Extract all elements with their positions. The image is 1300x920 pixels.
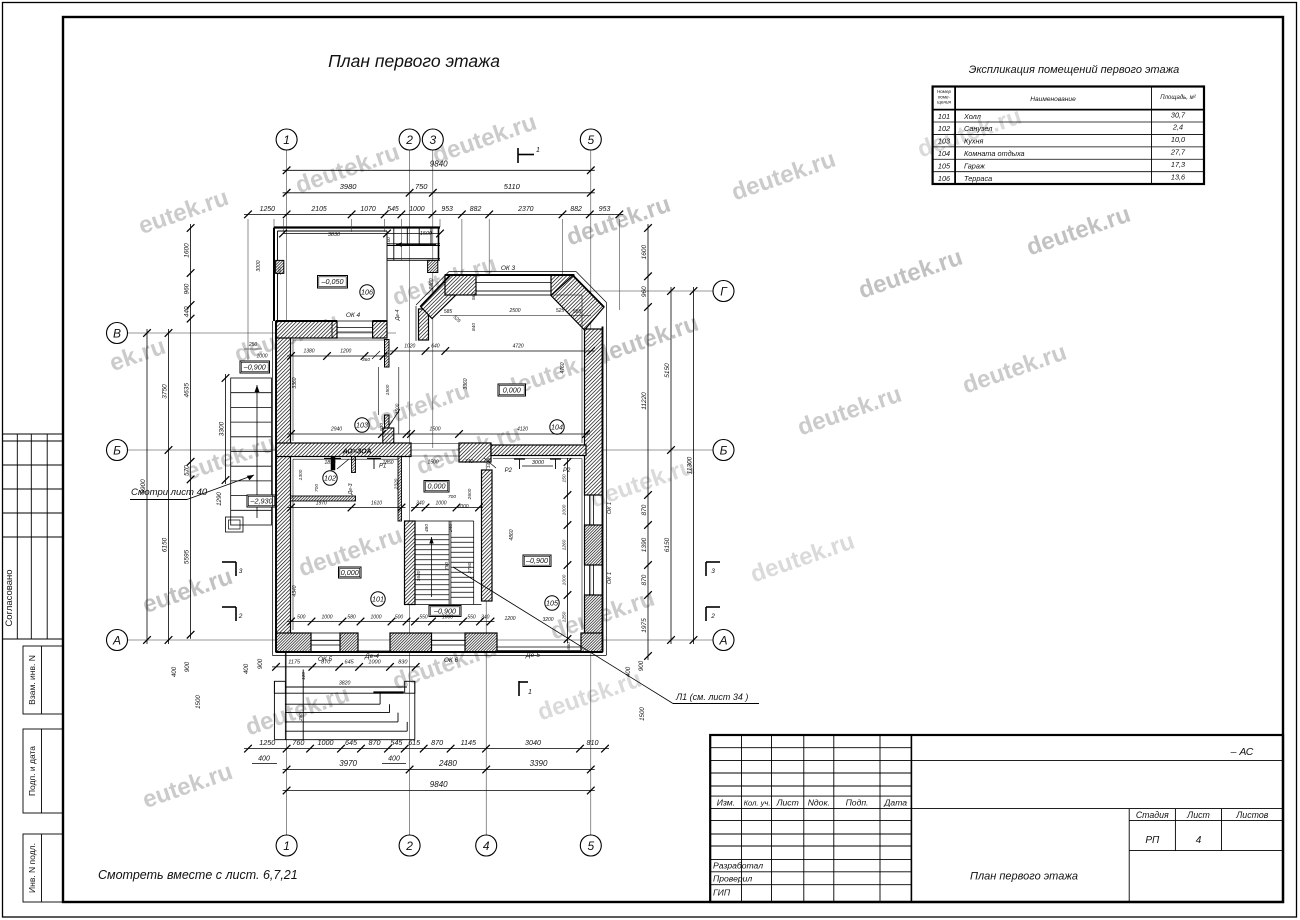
svg-text:1000: 1000 bbox=[435, 501, 446, 507]
svg-text:Лист: Лист bbox=[1186, 810, 1210, 820]
svg-text:3750: 3750 bbox=[162, 384, 169, 399]
svg-text:103: 103 bbox=[938, 137, 950, 146]
svg-text:поме-: поме- bbox=[938, 94, 951, 99]
svg-text:480: 480 bbox=[424, 524, 430, 532]
svg-text:700: 700 bbox=[314, 484, 320, 492]
svg-text:3640: 3640 bbox=[416, 570, 422, 581]
svg-text:4120: 4120 bbox=[517, 427, 528, 433]
svg-text:400: 400 bbox=[258, 756, 270, 763]
svg-text:882: 882 bbox=[570, 206, 582, 213]
svg-text:Л1 (см. лист 34 ): Л1 (см. лист 34 ) bbox=[675, 692, 748, 702]
svg-text:1200: 1200 bbox=[340, 349, 351, 355]
svg-text:400: 400 bbox=[243, 663, 250, 674]
svg-text:500: 500 bbox=[395, 615, 404, 621]
svg-text:1000: 1000 bbox=[457, 504, 468, 510]
svg-text:1380: 1380 bbox=[303, 349, 314, 355]
svg-text:830: 830 bbox=[398, 660, 408, 666]
svg-text:4760: 4760 bbox=[560, 362, 566, 373]
svg-text:0,000: 0,000 bbox=[341, 568, 359, 577]
svg-text:3820: 3820 bbox=[339, 681, 351, 687]
svg-text:Санузел: Санузел bbox=[964, 124, 992, 133]
svg-text:1260: 1260 bbox=[562, 539, 568, 550]
svg-text:104: 104 bbox=[938, 149, 950, 158]
svg-text:1600: 1600 bbox=[641, 245, 648, 260]
svg-text:3390: 3390 bbox=[530, 759, 548, 768]
svg-text:700: 700 bbox=[448, 494, 456, 500]
svg-text:2: 2 bbox=[238, 613, 243, 620]
svg-text:2320: 2320 bbox=[394, 478, 400, 490]
svg-text:Подп. и дата: Подп. и дата bbox=[27, 746, 37, 796]
svg-text:640: 640 bbox=[431, 344, 440, 350]
svg-text:ГИП: ГИП bbox=[713, 887, 731, 897]
svg-text:400: 400 bbox=[388, 756, 400, 763]
svg-text:–0,900: –0,900 bbox=[243, 362, 266, 371]
svg-text:0,000: 0,000 bbox=[503, 385, 521, 394]
svg-text:Взам. инв. N: Взам. инв. N bbox=[27, 655, 37, 705]
svg-text:1: 1 bbox=[283, 839, 290, 853]
svg-text:13,6: 13,6 bbox=[1171, 172, 1186, 181]
svg-text:1: 1 bbox=[283, 133, 290, 147]
svg-text:1500: 1500 bbox=[639, 707, 646, 721]
svg-text:2480: 2480 bbox=[438, 759, 457, 768]
svg-text:Холл: Холл bbox=[963, 112, 981, 121]
svg-text:3980: 3980 bbox=[340, 182, 358, 191]
svg-text:102: 102 bbox=[324, 474, 336, 483]
svg-text:Подп.: Подп. bbox=[846, 798, 869, 808]
svg-text:27,7: 27,7 bbox=[1170, 148, 1186, 157]
svg-text:1460: 1460 bbox=[429, 278, 435, 289]
svg-text:1600: 1600 bbox=[184, 243, 191, 258]
svg-text:4500: 4500 bbox=[395, 403, 401, 414]
svg-text:810: 810 bbox=[587, 738, 599, 747]
svg-text:1000: 1000 bbox=[442, 615, 453, 621]
svg-text:900: 900 bbox=[184, 661, 191, 672]
svg-text:660: 660 bbox=[566, 642, 571, 650]
svg-text:0,000: 0,000 bbox=[428, 482, 446, 491]
svg-text:104: 104 bbox=[551, 423, 563, 432]
svg-text:525: 525 bbox=[556, 308, 565, 314]
svg-text:Проверил: Проверил bbox=[713, 874, 752, 884]
svg-text:4635: 4635 bbox=[184, 383, 191, 398]
svg-text:30,7: 30,7 bbox=[1171, 110, 1186, 119]
svg-text:3830: 3830 bbox=[328, 232, 341, 238]
svg-text:1500: 1500 bbox=[385, 384, 391, 395]
svg-text:1000: 1000 bbox=[256, 354, 267, 360]
svg-text:1000: 1000 bbox=[562, 574, 568, 585]
svg-text:105: 105 bbox=[938, 161, 951, 170]
svg-text:105: 105 bbox=[546, 599, 559, 608]
svg-text:3: 3 bbox=[239, 568, 243, 575]
svg-text:150: 150 bbox=[562, 474, 568, 482]
svg-text:Изм.: Изм. bbox=[717, 798, 735, 808]
svg-text:ОК 4: ОК 4 bbox=[346, 312, 361, 319]
svg-text:953: 953 bbox=[599, 206, 611, 213]
svg-text:1500: 1500 bbox=[427, 460, 438, 466]
svg-text:585: 585 bbox=[573, 309, 582, 315]
svg-text:4860: 4860 bbox=[509, 529, 515, 540]
svg-text:5110: 5110 bbox=[504, 182, 521, 191]
svg-text:4720: 4720 bbox=[513, 344, 524, 350]
svg-text:740: 740 bbox=[465, 459, 474, 465]
svg-text:План первого этажа: План первого этажа bbox=[970, 871, 1078, 883]
svg-text:1850: 1850 bbox=[324, 460, 335, 466]
svg-text:Комната отдыха: Комната отдыха bbox=[964, 149, 1025, 158]
svg-text:щения: щения bbox=[937, 100, 952, 105]
svg-text:900: 900 bbox=[638, 660, 645, 671]
svg-text:870: 870 bbox=[431, 738, 443, 747]
svg-text:1300: 1300 bbox=[298, 469, 304, 480]
svg-text:645: 645 bbox=[345, 660, 355, 666]
svg-text:11300: 11300 bbox=[687, 456, 694, 474]
svg-text:Площадь, м²: Площадь, м² bbox=[1160, 95, 1196, 101]
svg-text:1390: 1390 bbox=[641, 537, 648, 552]
svg-text:2500: 2500 bbox=[508, 308, 520, 314]
svg-text:1200: 1200 bbox=[504, 616, 515, 622]
svg-text:750: 750 bbox=[415, 182, 428, 191]
svg-text:4: 4 bbox=[1196, 835, 1202, 846]
svg-text:– АС: – АС bbox=[1230, 746, 1254, 758]
svg-text:Nдок.: Nдок. bbox=[808, 798, 830, 808]
svg-text:1485: 1485 bbox=[486, 457, 491, 468]
svg-text:900: 900 bbox=[257, 658, 264, 669]
svg-text:А: А bbox=[718, 633, 727, 647]
svg-text:3000: 3000 bbox=[256, 260, 262, 271]
svg-text:106: 106 bbox=[361, 288, 373, 297]
svg-text:2: 2 bbox=[710, 613, 715, 620]
svg-text:1250: 1250 bbox=[259, 738, 275, 747]
svg-text:АО=ЗОА: АО=ЗОА bbox=[342, 449, 372, 456]
svg-text:6150: 6150 bbox=[162, 537, 169, 552]
svg-text:3300: 3300 bbox=[219, 421, 226, 436]
svg-text:P2: P2 bbox=[563, 468, 571, 474]
svg-text:1145: 1145 bbox=[461, 738, 477, 747]
svg-text:Кол. уч.: Кол. уч. bbox=[744, 799, 771, 808]
svg-text:3040: 3040 bbox=[525, 738, 541, 747]
svg-text:1250: 1250 bbox=[562, 611, 568, 622]
svg-text:103: 103 bbox=[356, 421, 368, 430]
svg-text:5: 5 bbox=[587, 839, 594, 853]
svg-text:101: 101 bbox=[372, 595, 384, 604]
svg-text:960: 960 bbox=[184, 283, 191, 294]
svg-text:3970: 3970 bbox=[339, 759, 357, 768]
svg-text:3: 3 bbox=[711, 568, 715, 575]
svg-text:300: 300 bbox=[277, 267, 282, 275]
svg-text:9840: 9840 bbox=[430, 160, 448, 169]
svg-text:Терраса: Терраса bbox=[964, 174, 992, 183]
svg-text:РП: РП bbox=[1145, 835, 1160, 846]
svg-text:400: 400 bbox=[171, 666, 178, 677]
svg-text:1000: 1000 bbox=[321, 615, 332, 621]
svg-text:250: 250 bbox=[248, 342, 258, 348]
svg-text:2,4: 2,4 bbox=[1172, 123, 1183, 132]
svg-text:550: 550 bbox=[467, 615, 476, 621]
svg-text:3360: 3360 bbox=[292, 377, 298, 388]
svg-text:1: 1 bbox=[536, 147, 540, 154]
svg-text:1070: 1070 bbox=[360, 206, 375, 213]
svg-text:1975: 1975 bbox=[641, 618, 648, 633]
svg-text:120: 120 bbox=[301, 672, 306, 680]
svg-text:560: 560 bbox=[471, 292, 477, 300]
svg-text:Разработал: Разработал bbox=[713, 860, 763, 870]
svg-text:3200: 3200 bbox=[542, 617, 553, 623]
svg-text:1500: 1500 bbox=[420, 231, 433, 237]
svg-text:870: 870 bbox=[321, 660, 331, 666]
svg-text:440: 440 bbox=[184, 306, 191, 317]
svg-text:1000: 1000 bbox=[562, 504, 568, 515]
svg-text:102: 102 bbox=[938, 124, 950, 133]
svg-text:2105: 2105 bbox=[310, 206, 326, 213]
svg-text:В: В bbox=[113, 326, 121, 340]
svg-text:106: 106 bbox=[938, 174, 951, 183]
svg-text:250: 250 bbox=[298, 713, 303, 722]
svg-text:–0,050: –0,050 bbox=[321, 277, 344, 286]
svg-text:750: 750 bbox=[444, 562, 450, 570]
svg-text:580: 580 bbox=[347, 615, 356, 621]
svg-text:840: 840 bbox=[471, 323, 477, 331]
svg-text:9840: 9840 bbox=[430, 780, 448, 789]
svg-text:Согласовано: Согласовано bbox=[4, 569, 15, 626]
svg-text:2: 2 bbox=[405, 133, 413, 147]
svg-text:100: 100 bbox=[386, 237, 391, 245]
svg-text:240: 240 bbox=[448, 524, 454, 533]
svg-text:340: 340 bbox=[481, 615, 490, 621]
svg-text:1000: 1000 bbox=[368, 660, 381, 666]
svg-text:5: 5 bbox=[587, 133, 594, 147]
svg-text:P2: P2 bbox=[505, 468, 513, 474]
svg-text:ОК 3: ОК 3 bbox=[501, 265, 516, 272]
svg-text:Листов: Листов bbox=[1235, 810, 1268, 820]
svg-text:4340: 4340 bbox=[292, 585, 298, 596]
svg-text:2370: 2370 bbox=[517, 206, 533, 213]
svg-text:1175: 1175 bbox=[288, 660, 301, 666]
svg-text:Де-4: Де-4 bbox=[395, 309, 401, 321]
svg-text:3360: 3360 bbox=[463, 378, 469, 389]
svg-text:2940: 2940 bbox=[330, 427, 342, 433]
svg-text:6150: 6150 bbox=[664, 537, 671, 552]
svg-text:870: 870 bbox=[641, 574, 648, 585]
svg-text:ОК 6: ОК 6 bbox=[444, 657, 459, 664]
svg-text:500: 500 bbox=[297, 615, 306, 621]
svg-text:Стадия: Стадия bbox=[1136, 810, 1169, 820]
svg-text:360: 360 bbox=[362, 357, 370, 363]
svg-text:1500: 1500 bbox=[429, 427, 440, 433]
svg-text:–0,900: –0,900 bbox=[525, 556, 548, 565]
svg-text:870: 870 bbox=[641, 504, 648, 515]
svg-text:340: 340 bbox=[416, 501, 425, 507]
svg-text:Наименование: Наименование bbox=[1030, 96, 1076, 103]
svg-text:Кухня: Кухня bbox=[964, 137, 984, 146]
svg-text:545: 545 bbox=[387, 206, 399, 213]
svg-text:–2,930: –2,930 bbox=[250, 496, 273, 505]
svg-text:План первого этажа: План первого этажа bbox=[328, 51, 500, 71]
svg-text:550: 550 bbox=[419, 615, 428, 621]
svg-text:1970: 1970 bbox=[316, 501, 327, 507]
svg-text:953: 953 bbox=[441, 206, 453, 213]
svg-text:Б: Б bbox=[113, 443, 121, 457]
svg-text:1: 1 bbox=[528, 689, 532, 696]
svg-text:1000: 1000 bbox=[370, 615, 381, 621]
svg-text:5595: 5595 bbox=[184, 549, 191, 564]
svg-text:3: 3 bbox=[429, 133, 436, 147]
svg-text:1610: 1610 bbox=[371, 501, 382, 507]
svg-text:11220: 11220 bbox=[641, 392, 648, 410]
svg-text:1290: 1290 bbox=[216, 492, 223, 506]
svg-text:1000: 1000 bbox=[409, 206, 424, 213]
svg-text:ОК 1: ОК 1 bbox=[607, 572, 613, 584]
svg-text:Смотреть вместе с лист. 6,7,21: Смотреть вместе с лист. 6,7,21 bbox=[98, 868, 298, 882]
svg-text:5150: 5150 bbox=[664, 363, 671, 378]
svg-text:17,3: 17,3 bbox=[1171, 160, 1185, 169]
svg-text:2600: 2600 bbox=[467, 488, 473, 500]
svg-text:930: 930 bbox=[379, 423, 385, 431]
svg-text:4: 4 bbox=[483, 839, 490, 853]
svg-text:Номер: Номер bbox=[937, 89, 952, 94]
svg-text:585: 585 bbox=[444, 309, 453, 315]
svg-text:10,0: 10,0 bbox=[1171, 135, 1185, 144]
svg-text:А: А bbox=[112, 633, 121, 647]
svg-text:3000: 3000 bbox=[532, 460, 545, 466]
svg-text:1850: 1850 bbox=[382, 460, 393, 466]
svg-text:1500: 1500 bbox=[195, 695, 202, 709]
svg-text:Б: Б bbox=[720, 443, 728, 457]
svg-text:Экспликация помещений первого: Экспликация помещений первого этажа bbox=[969, 64, 1180, 76]
svg-text:2760: 2760 bbox=[467, 562, 473, 574]
svg-text:1020: 1020 bbox=[404, 344, 415, 350]
svg-text:Инв. N подл.: Инв. N подл. bbox=[27, 843, 37, 893]
svg-text:Де-3: Де-3 bbox=[348, 483, 354, 495]
svg-text:Лист: Лист bbox=[776, 798, 799, 808]
svg-text:882: 882 bbox=[470, 206, 482, 213]
svg-text:1250: 1250 bbox=[260, 206, 275, 213]
svg-text:Дата: Дата bbox=[883, 798, 907, 808]
svg-text:960: 960 bbox=[641, 286, 648, 297]
svg-text:101: 101 bbox=[938, 112, 950, 121]
svg-text:2: 2 bbox=[405, 839, 413, 853]
svg-text:ОК 1: ОК 1 bbox=[607, 502, 613, 514]
svg-text:570: 570 bbox=[184, 465, 191, 476]
svg-text:Гараж: Гараж bbox=[964, 161, 986, 170]
